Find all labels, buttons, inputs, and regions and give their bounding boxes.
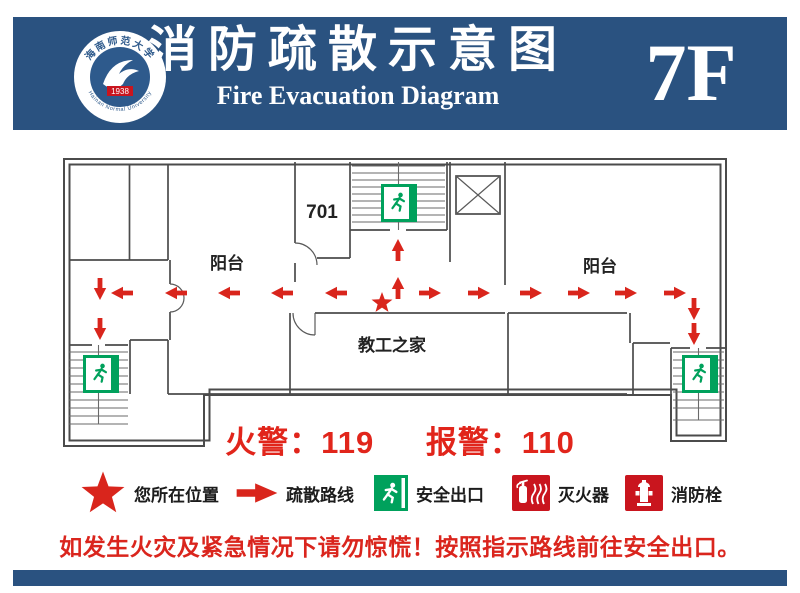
evacuation-route-arrows — [94, 239, 700, 345]
exit-sign-icon-center — [381, 184, 417, 222]
legend-item-extinguisher: 灭火器 — [512, 468, 609, 518]
legend-row: 您所在位置 疏散路线 安全出口 — [0, 468, 800, 518]
room-label-balcony-left: 阳台 — [210, 253, 244, 273]
route-arrow-icon — [615, 287, 637, 299]
route-arrow-icon — [94, 278, 106, 300]
legend-label: 安全出口 — [416, 481, 484, 506]
route-arrow-icon — [664, 287, 686, 299]
room-label-701: 701 — [306, 202, 338, 223]
route-arrow-icon — [94, 318, 106, 340]
fire-hydrant-icon — [625, 475, 663, 511]
route-arrow-icon — [111, 287, 133, 299]
route-arrow-icon — [419, 287, 441, 299]
exit-sign-icon — [374, 475, 408, 511]
legend-label: 疏散路线 — [286, 481, 354, 506]
route-arrow-icon — [218, 287, 240, 299]
legend-label: 您所在位置 — [134, 481, 219, 506]
elevator-shaft — [456, 176, 500, 214]
exit-sign-icon-left — [83, 355, 119, 393]
police-number: 报警：110 — [426, 425, 575, 460]
legend-item-route: 疏散路线 — [236, 468, 354, 518]
legend-item-exit: 安全出口 — [374, 468, 484, 518]
route-arrow-icon — [520, 287, 542, 299]
route-arrow-icon — [688, 298, 700, 320]
route-arrow-icon — [271, 287, 293, 299]
route-arrow-icon — [568, 287, 590, 299]
fire-extinguisher-icon — [512, 475, 550, 511]
exit-sign-icon-right — [682, 355, 718, 393]
location-star-icon — [80, 469, 126, 517]
route-arrow-icon — [325, 287, 347, 299]
route-arrow-icon — [236, 483, 278, 503]
evacuation-poster: 1938 海南师范大学 Hainan Normal University 消防疏… — [0, 0, 800, 593]
room-label-balcony-right: 阳台 — [583, 256, 617, 276]
warning-text: 如发生火灾及紧急情况下请勿惊慌！按照指示路线前往安全出口。 — [20, 528, 780, 562]
route-arrow-icon — [468, 287, 490, 299]
legend-label: 消防栓 — [671, 481, 722, 506]
route-arrow-icon — [688, 323, 700, 345]
room-label-staff-home: 教工之家 — [357, 335, 426, 355]
bottom-bar — [13, 570, 787, 586]
legend-item-hydrant: 消防栓 — [625, 468, 722, 518]
fire-number: 火警：119 — [225, 425, 374, 460]
route-arrow-icon — [392, 277, 404, 299]
route-arrow-icon — [392, 239, 404, 261]
legend-label: 灭火器 — [558, 481, 609, 506]
emergency-numbers: 火警：119 报警：110 — [0, 417, 800, 462]
current-location-star-icon — [372, 292, 393, 312]
legend-item-location: 您所在位置 — [80, 468, 219, 518]
